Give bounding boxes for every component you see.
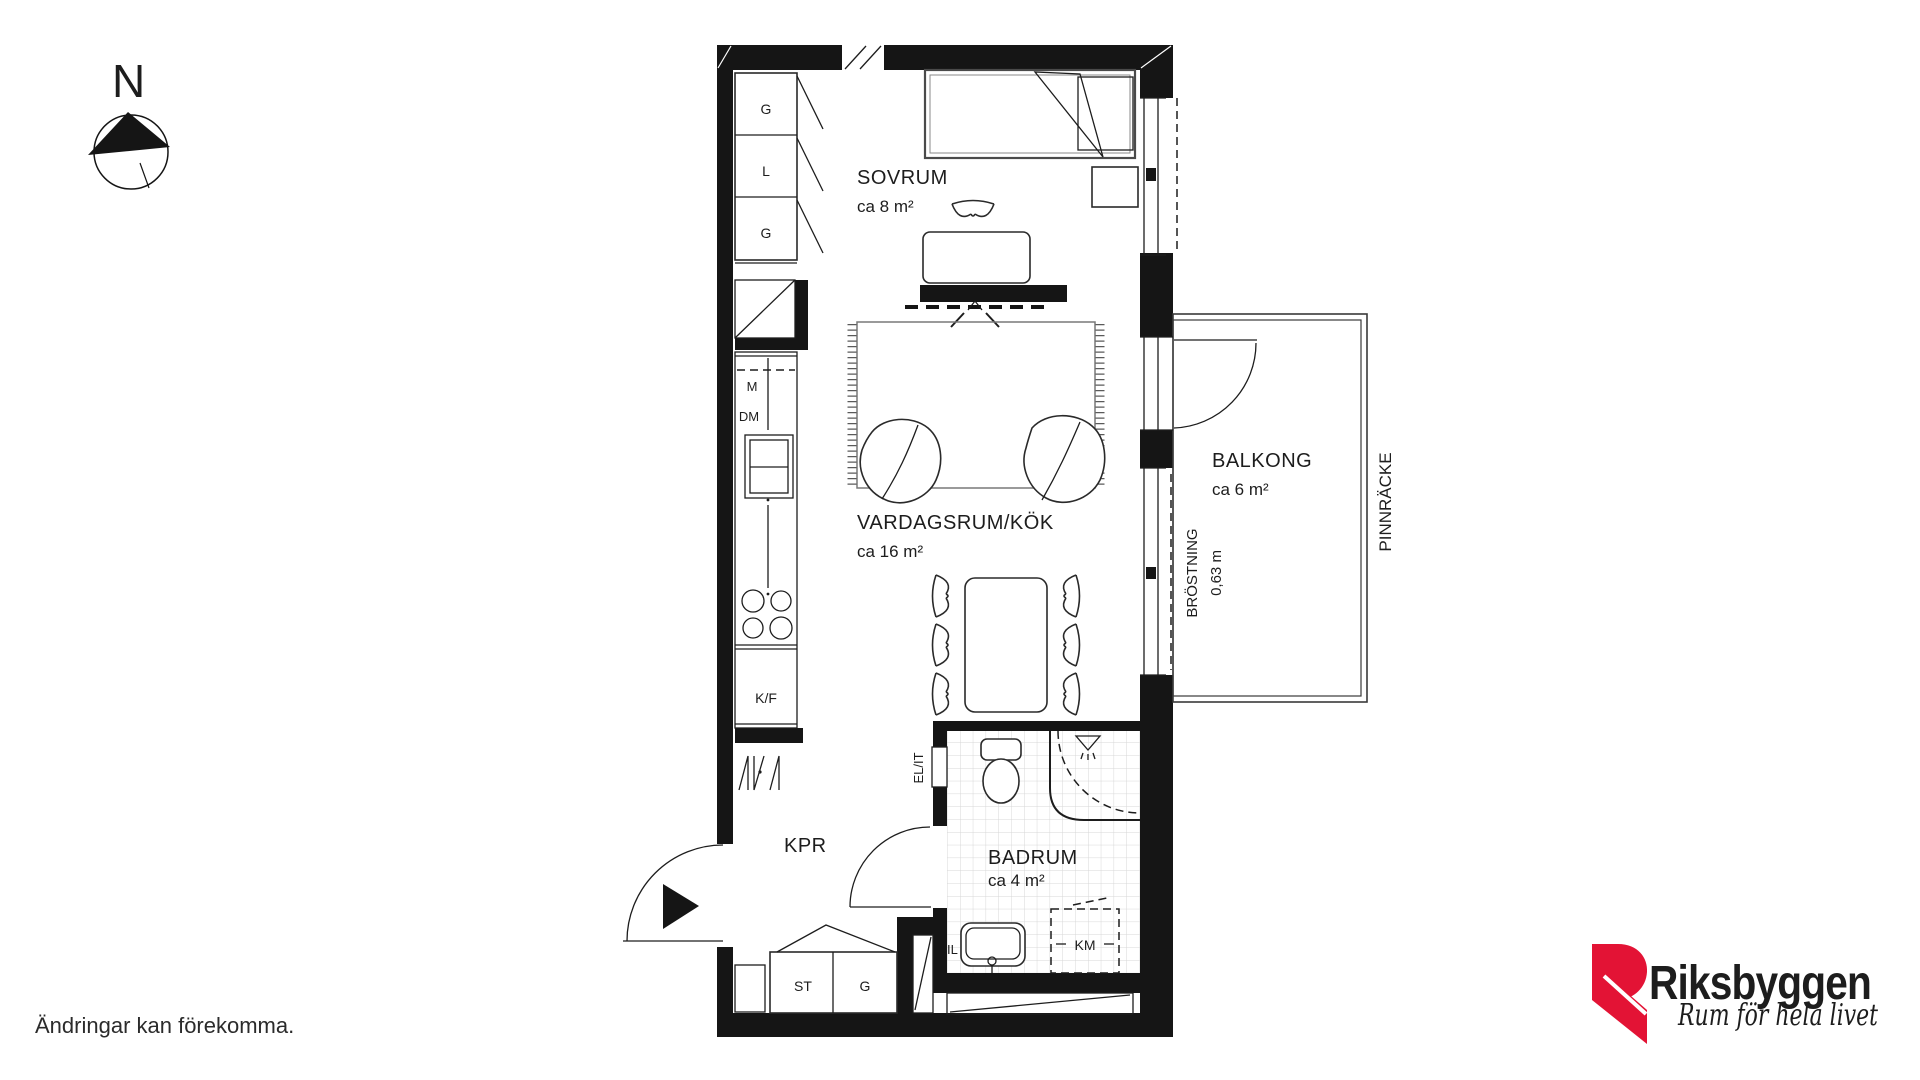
desk-chair — [952, 201, 994, 217]
washing-machine-label: KM — [1075, 937, 1096, 953]
dining-chair — [933, 624, 949, 666]
floor-plan-drawing: N — [0, 0, 1920, 1080]
basin-label: IL — [947, 942, 958, 957]
microwave-label: M — [747, 379, 758, 394]
hall: ST G — [623, 845, 933, 1013]
entry-column — [735, 965, 765, 1012]
sliding-door — [905, 301, 1048, 327]
dining-chair — [933, 575, 949, 617]
bathroom-window — [947, 993, 1133, 1014]
room-name-vardagsrum: VARDAGSRUM/KÖK — [857, 512, 1054, 534]
toilet-icon — [981, 739, 1021, 803]
shaft — [735, 280, 795, 338]
dining-table — [965, 578, 1047, 712]
hall-closets: ST G — [770, 925, 897, 1013]
compass-needle-icon — [88, 112, 170, 155]
fridge-freezer-label: K/F — [755, 690, 777, 706]
room-name-sovrum: SOVRUM — [857, 167, 948, 189]
room-area-balkong: ca 6 m² — [1212, 480, 1269, 499]
balcony-door — [1140, 337, 1257, 430]
dining-chair — [1064, 673, 1080, 715]
compass-tail — [140, 163, 149, 188]
oven-icon — [745, 435, 793, 498]
entrance-door — [623, 845, 723, 941]
closet-label: L — [762, 163, 770, 179]
room-name-badrum: BADRUM — [988, 847, 1078, 869]
compass: N — [88, 55, 170, 189]
room-name-balkong: BALKONG — [1212, 450, 1312, 472]
hall-shaft — [913, 935, 933, 1013]
closet-label: G — [761, 101, 772, 117]
bedside-table — [1092, 167, 1138, 207]
floor-plan-page: N — [0, 0, 1920, 1080]
kitchen: M DM K/F — [735, 352, 797, 790]
dishwasher-label: DM — [739, 409, 759, 424]
armchair — [1024, 416, 1105, 503]
dining-chair — [933, 673, 949, 715]
bathroom-door — [850, 827, 931, 907]
room-name-kpr: KPR — [784, 835, 827, 857]
room-area-sovrum: ca 8 m² — [857, 197, 914, 216]
washbasin-icon — [961, 923, 1025, 973]
hob-icon — [742, 590, 792, 639]
closet-label: G — [761, 225, 772, 241]
bed — [925, 70, 1135, 158]
closet-label: ST — [794, 978, 812, 994]
dining-chair — [1064, 575, 1080, 617]
livingroom-window — [1140, 468, 1171, 675]
balcony — [1140, 314, 1367, 702]
closet-label: G — [860, 978, 871, 994]
el-it-cabinet — [932, 747, 947, 787]
riksbyggen-logo: Riksbyggen Rum för hela livet — [1592, 944, 1879, 1044]
entrance-arrow-icon — [663, 884, 699, 929]
desk — [923, 232, 1030, 283]
logo-tagline: Rum för hela livet — [1677, 998, 1878, 1033]
bedroom-window — [1140, 98, 1177, 255]
coat-rack-icon — [739, 756, 779, 790]
room-area-vardagsrum: ca 16 m² — [857, 542, 923, 561]
dining-chair — [1064, 624, 1080, 666]
el-it-label: EL/IT — [911, 752, 926, 783]
room-area-badrum: ca 4 m² — [988, 871, 1045, 890]
disclaimer-text: Ändringar kan förekomma. — [35, 1013, 294, 1038]
armchair — [860, 419, 940, 502]
parapet-height-label: 0,63 m — [1208, 550, 1225, 596]
parapet-label: BRÖSTNING — [1183, 528, 1201, 617]
bedroom-closets: G L G — [735, 73, 823, 263]
railing-label: PINNRÄCKE — [1376, 452, 1395, 551]
compass-north-label: N — [112, 55, 145, 107]
